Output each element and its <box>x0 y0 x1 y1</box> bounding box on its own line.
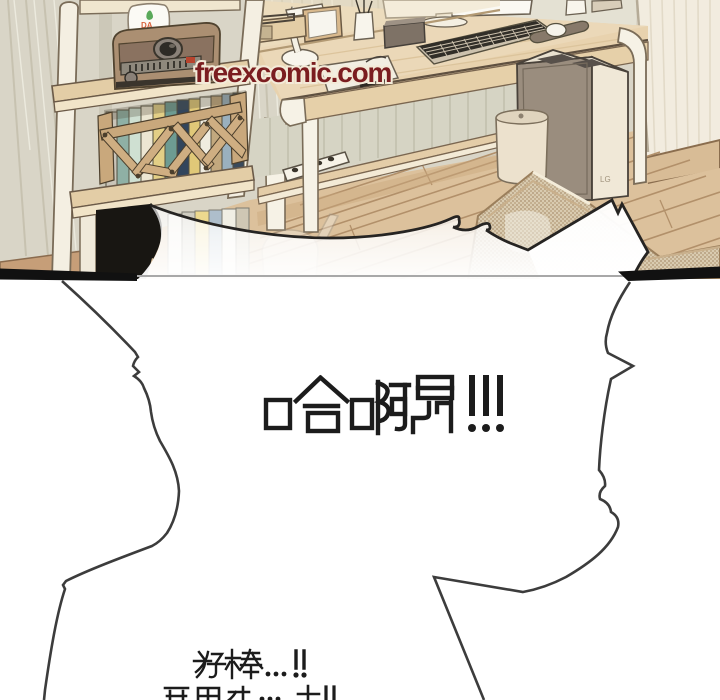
svg-text:freexcomic.com: freexcomic.com <box>195 57 392 88</box>
svg-text:LG: LG <box>600 175 611 184</box>
